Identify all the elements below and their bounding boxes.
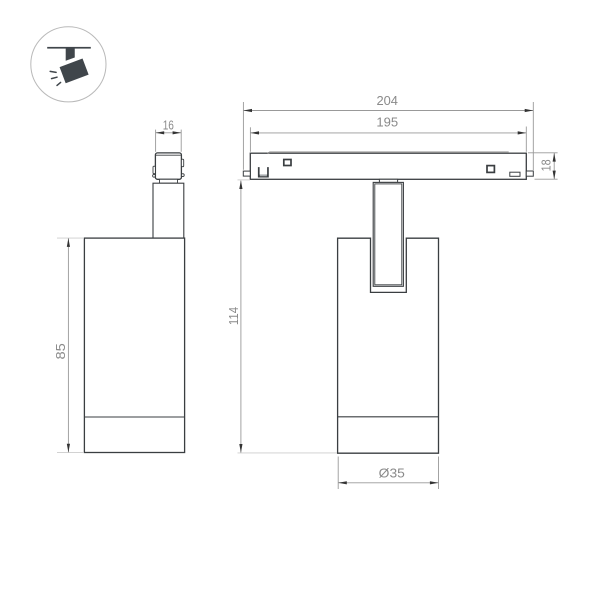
svg-text:16: 16 — [163, 118, 174, 133]
svg-text:114: 114 — [226, 307, 241, 325]
svg-text:85: 85 — [53, 343, 68, 359]
svg-text:195: 195 — [376, 114, 398, 129]
svg-text:Ø35: Ø35 — [379, 466, 405, 481]
svg-text:18: 18 — [539, 159, 554, 171]
svg-text:204: 204 — [376, 93, 398, 108]
